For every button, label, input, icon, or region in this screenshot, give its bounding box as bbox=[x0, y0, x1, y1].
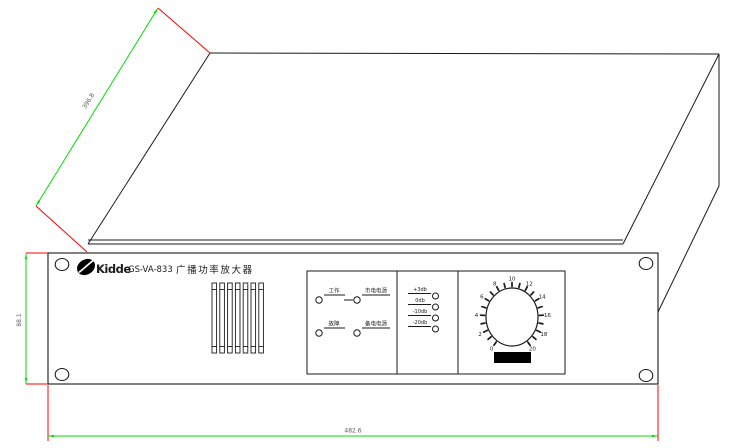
dimension-value: 88.1 bbox=[16, 313, 23, 327]
vent-slots bbox=[212, 283, 263, 353]
mounting-hole-bottom-right bbox=[639, 370, 653, 382]
extension-line bbox=[36, 206, 87, 252]
indicator-led bbox=[354, 330, 360, 336]
dimension-width: 482.6 bbox=[48, 385, 658, 441]
knob-scale-number: 4 bbox=[475, 313, 479, 319]
model-text: GS-VA-833 bbox=[128, 265, 173, 275]
volume-knob: 02468101214161820 bbox=[475, 277, 552, 364]
knob-tick bbox=[482, 307, 486, 308]
knob-tick bbox=[490, 292, 493, 295]
indicator-label: 故障 bbox=[328, 320, 340, 328]
vent-slot bbox=[243, 283, 248, 353]
vent-slot bbox=[251, 283, 256, 353]
status-indicator: 故障 bbox=[316, 320, 345, 337]
indicator-led bbox=[316, 297, 322, 303]
knob-tick bbox=[531, 292, 534, 295]
knob-scale-number: 0 bbox=[490, 347, 494, 353]
knob-tick bbox=[519, 284, 520, 288]
knob-tick bbox=[494, 342, 496, 345]
knob-tick bbox=[539, 323, 543, 324]
indicator-led bbox=[354, 297, 360, 303]
indicator-led bbox=[316, 330, 322, 336]
top-face-left-edge bbox=[88, 53, 210, 244]
product-name-text: 广播功率放大器 bbox=[176, 264, 254, 276]
brand-logo: Kidde GS-VA-833 广播功率放大器 bbox=[74, 256, 254, 279]
dimension-value: 396.8 bbox=[81, 92, 96, 110]
indicator-label: 市电电源 bbox=[365, 287, 388, 295]
vent-slot bbox=[220, 283, 225, 353]
status-indicator: 市电电源 bbox=[344, 287, 390, 304]
level-label: 0db bbox=[415, 298, 425, 304]
dimension-arrow bbox=[25, 253, 27, 259]
mounting-hole-top-right bbox=[639, 258, 653, 270]
level-led-group: +3db 0db -10db -20db bbox=[408, 287, 439, 332]
knob-scale-number: 12 bbox=[526, 281, 533, 287]
dimension-arrow bbox=[25, 378, 27, 384]
knob-tick bbox=[484, 330, 488, 332]
engineering-drawing-canvas: Kidde GS-VA-833 广播功率放大器 工作 市电电源 bbox=[0, 0, 735, 448]
knob-tick bbox=[504, 284, 505, 288]
knob-tick bbox=[488, 337, 491, 340]
vent-slot bbox=[212, 283, 217, 353]
knob-dial bbox=[486, 288, 538, 346]
knob-label-plate bbox=[494, 352, 531, 363]
dimension-arrow bbox=[48, 435, 54, 437]
enclosure-top-face bbox=[88, 53, 719, 244]
vent-slot bbox=[235, 283, 240, 353]
level-label: -20db bbox=[413, 320, 428, 326]
side-face-bottom-edge bbox=[658, 186, 719, 312]
knob-tick bbox=[497, 287, 499, 290]
knob-tick bbox=[525, 287, 527, 290]
knob-scale-number: 18 bbox=[540, 332, 547, 338]
knob-scale-number: 10 bbox=[509, 277, 516, 283]
indicator-label: 工作 bbox=[328, 287, 340, 295]
level-led-row: -20db bbox=[408, 320, 439, 332]
knob-scale-number: 16 bbox=[544, 313, 551, 319]
extension-line bbox=[158, 8, 210, 53]
level-led bbox=[433, 304, 439, 310]
status-indicator: 工作 bbox=[316, 287, 345, 304]
dimension-arrow bbox=[36, 200, 40, 206]
level-led bbox=[433, 326, 439, 332]
vent-slot bbox=[228, 283, 233, 353]
mounting-hole-bottom-left bbox=[55, 369, 69, 381]
dimension-arrow bbox=[652, 435, 658, 437]
dimension-depth: 396.8 bbox=[36, 8, 210, 252]
brand-text: Kidde bbox=[96, 262, 131, 276]
cad-drawing: Kidde GS-VA-833 广播功率放大器 工作 市电电源 bbox=[0, 0, 735, 448]
dimension-height: 88.1 bbox=[16, 253, 48, 384]
level-led bbox=[433, 293, 439, 299]
knob-scale-number: 2 bbox=[478, 332, 482, 338]
dimension-line bbox=[36, 8, 158, 206]
knob-tick bbox=[538, 307, 542, 308]
status-indicator-group: 工作 市电电源 故障 备电电源 bbox=[316, 287, 390, 337]
status-indicator: 备电电源 bbox=[354, 320, 390, 337]
top-face-back-edge bbox=[210, 53, 719, 54]
knob-scale-number: 8 bbox=[493, 281, 497, 287]
level-label: -10db bbox=[413, 309, 428, 315]
knob-tick bbox=[528, 342, 530, 345]
knob-tick bbox=[485, 299, 488, 301]
knob-tick bbox=[481, 323, 485, 324]
knob-tick bbox=[533, 337, 536, 340]
level-label: +3db bbox=[413, 287, 427, 293]
enclosure-side-face bbox=[658, 54, 719, 312]
knob-scale-number: 14 bbox=[539, 295, 546, 301]
knob-scale-number: 20 bbox=[529, 347, 536, 353]
mounting-hole-top-left bbox=[55, 259, 69, 271]
indicator-label: 备电电源 bbox=[365, 320, 388, 328]
knob-scale-number: 6 bbox=[480, 295, 484, 301]
vent-slot bbox=[259, 283, 264, 353]
dimension-value: 482.6 bbox=[344, 428, 361, 435]
level-led bbox=[433, 315, 439, 321]
